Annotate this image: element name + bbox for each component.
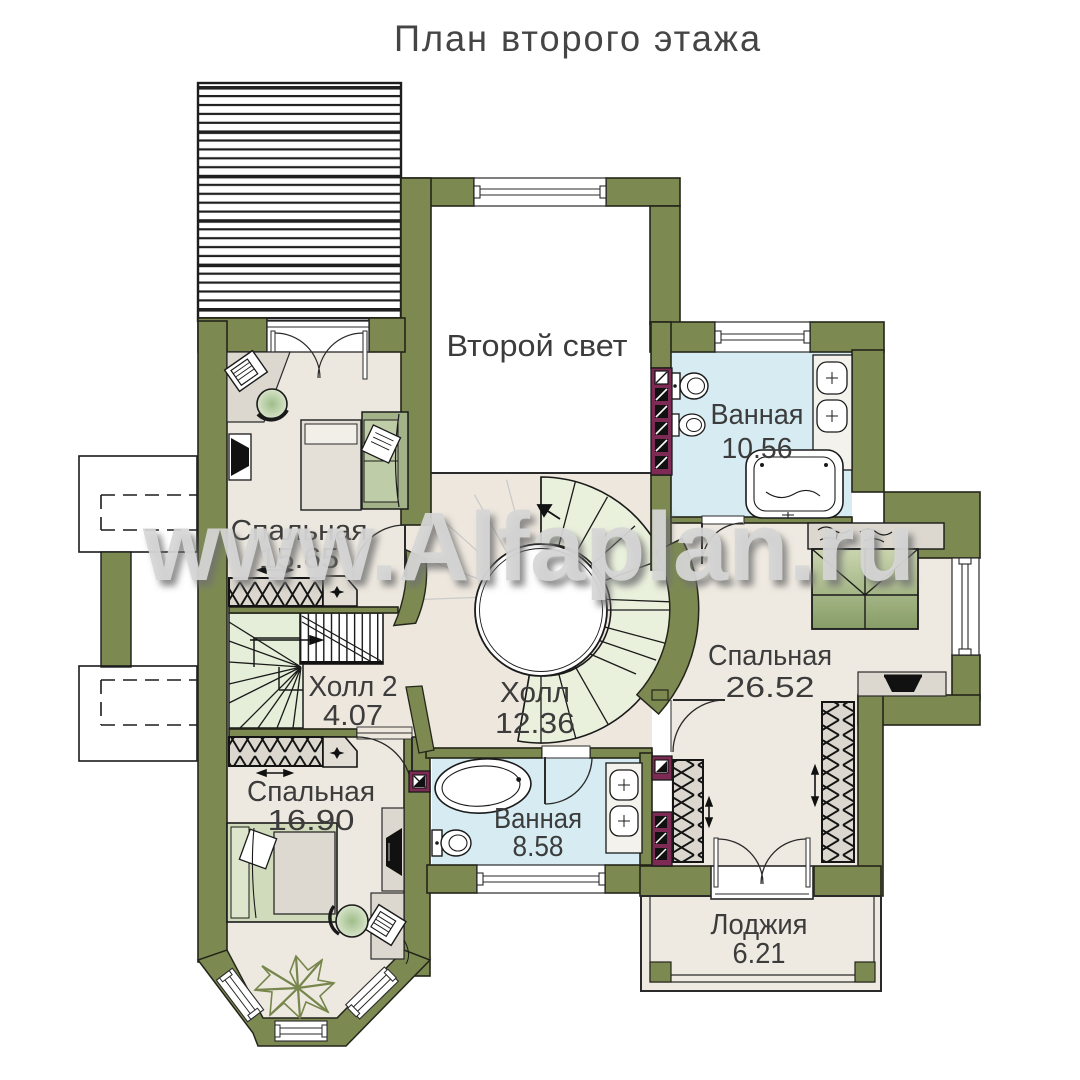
svg-text:Лоджия: Лоджия <box>711 909 808 941</box>
svg-text:Спальная: Спальная <box>247 776 375 808</box>
svg-text:8.58: 8.58 <box>513 831 564 863</box>
svg-text:26.52: 26.52 <box>726 672 815 704</box>
svg-text:6.21: 6.21 <box>733 938 786 970</box>
svg-text:План второго этажа: План второго этажа <box>394 18 762 59</box>
svg-text:Ванная: Ванная <box>711 399 804 431</box>
svg-text:4.07: 4.07 <box>323 700 383 732</box>
svg-text:10.56: 10.56 <box>722 433 793 465</box>
svg-text:Холл: Холл <box>500 677 570 709</box>
svg-text:Спальная: Спальная <box>708 640 832 672</box>
svg-text:Холл 2: Холл 2 <box>309 671 398 703</box>
svg-text:Второй свет: Второй свет <box>447 328 628 363</box>
svg-text:16.90: 16.90 <box>268 805 355 837</box>
svg-text:www.Alfaplan.ru: www.Alfaplan.ru <box>142 492 915 601</box>
svg-text:12.36: 12.36 <box>495 708 575 740</box>
